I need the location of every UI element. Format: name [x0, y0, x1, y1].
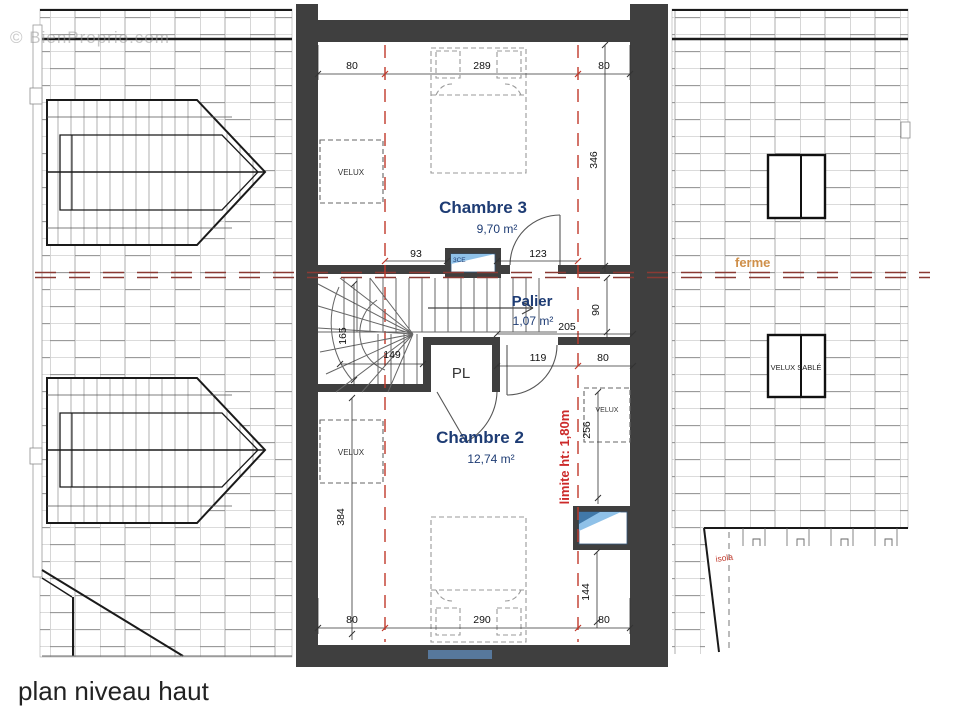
left-gutter-strip — [33, 25, 42, 577]
velux-window-upper — [768, 155, 825, 218]
wall-right — [630, 4, 668, 667]
chambre2-name: Chambre 2 — [436, 428, 524, 447]
window-bottom-strip — [428, 650, 492, 659]
floor-plan-drawing: VELUX SABLÉ isola 3CE — [0, 0, 974, 720]
dim-346: 346 — [588, 151, 600, 169]
ferme-label: ferme — [735, 255, 770, 270]
wall-top — [296, 20, 668, 42]
right-roof-tiles — [672, 9, 908, 528]
velux-sable-window: VELUX SABLÉ — [768, 335, 825, 397]
right-roof: VELUX SABLÉ isola — [672, 9, 910, 654]
velux-sable-label: VELUX SABLÉ — [771, 363, 822, 372]
dim-bottom-290: 290 — [473, 614, 491, 626]
velux-lower-left-label: VELUX — [338, 448, 365, 457]
isola-label: isola — [715, 552, 734, 564]
dim-top-289: 289 — [473, 60, 491, 72]
wall-pl-top — [423, 337, 500, 345]
velux-right-label: VELUX — [596, 407, 619, 414]
eave-ticks — [743, 528, 897, 546]
wall-palier-ch2 — [558, 337, 630, 345]
page-title: plan niveau haut — [18, 676, 210, 706]
pl-label: PL — [452, 365, 470, 382]
palier-name: Palier — [512, 293, 553, 310]
dim-205: 205 — [558, 321, 576, 333]
dim-bottom-80r: 80 — [598, 614, 610, 626]
dim-384: 384 — [335, 508, 347, 526]
dim-256: 256 — [581, 421, 593, 439]
dim-123: 123 — [529, 248, 547, 260]
wall-stair-bottom — [318, 384, 423, 392]
window-3ce-label: 3CE — [453, 257, 466, 264]
velux-upper-left-label: VELUX — [338, 168, 365, 177]
watermark: © BienProprio.com — [10, 28, 170, 47]
dim-bottom-80l: 80 — [346, 614, 358, 626]
palier-area: 1,07 m² — [513, 314, 554, 328]
velux-upper-frame — [768, 155, 825, 218]
right-roof-strip — [672, 528, 705, 654]
wall-left — [296, 4, 318, 667]
chambre3-area: 9,70 m² — [477, 222, 518, 236]
left-notch-lower — [30, 448, 42, 464]
chambre3-name: Chambre 3 — [439, 198, 527, 217]
dim-80b: 80 — [597, 352, 609, 364]
dim-top-80r: 80 — [598, 60, 610, 72]
dim-119: 119 — [530, 352, 547, 364]
wall-pl-right — [492, 345, 500, 392]
limite-label: limite ht: 1,80m — [557, 410, 572, 505]
floor-plan-page: VELUX SABLÉ isola 3CE — [0, 0, 974, 720]
dim-144: 144 — [580, 583, 592, 601]
dim-149: 149 — [383, 349, 401, 361]
dim-90: 90 — [590, 304, 602, 316]
dim-top-80l: 80 — [346, 60, 358, 72]
left-roof — [30, 9, 292, 657]
roof-window-3ce: 3CE — [445, 248, 501, 278]
gutter-hooks — [753, 539, 892, 546]
right-roof-valley — [704, 528, 719, 652]
wall-pl-left — [423, 345, 431, 392]
chambre2-area: 12,74 m² — [467, 452, 514, 466]
dim-93: 93 — [410, 248, 422, 260]
left-notch-upper — [30, 88, 42, 104]
right-notch — [901, 122, 910, 138]
roof-window-right — [573, 506, 633, 550]
dim-165: 165 — [337, 327, 349, 345]
